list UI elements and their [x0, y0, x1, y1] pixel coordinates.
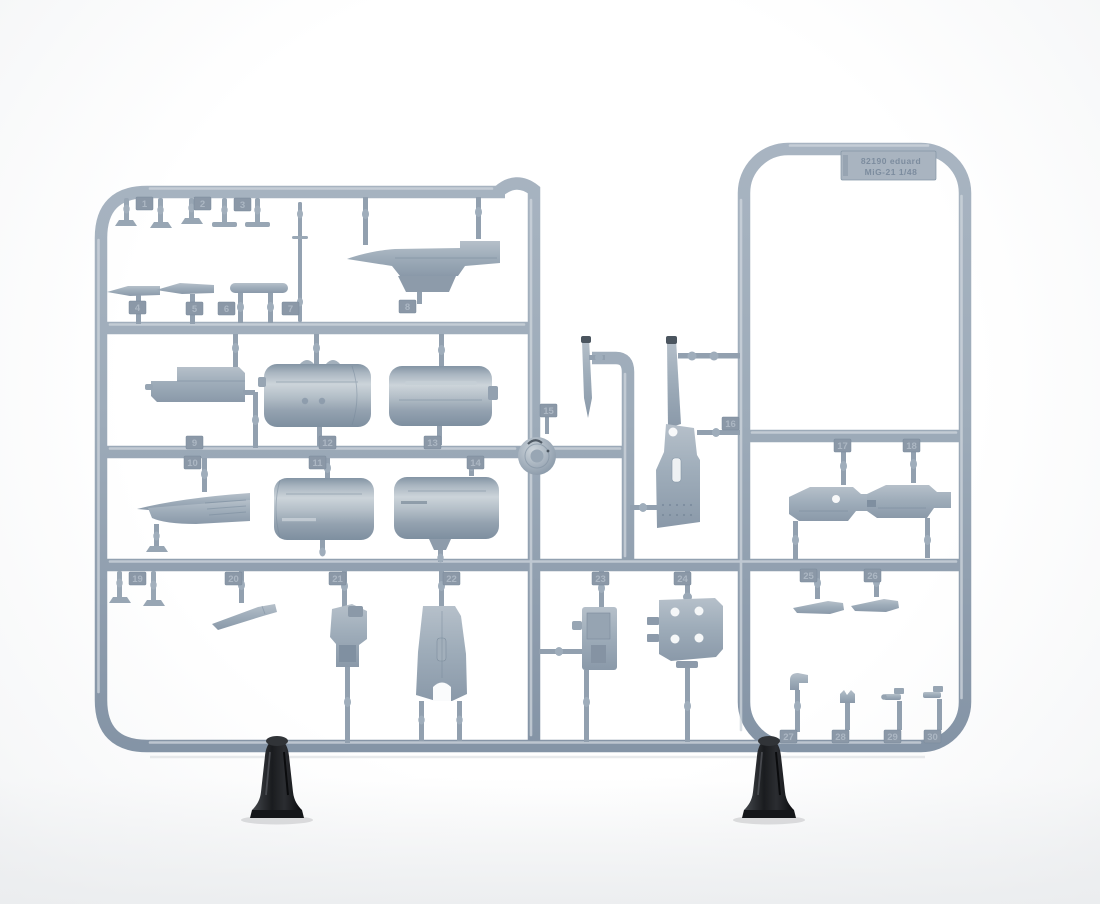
svg-text:20: 20 — [228, 574, 239, 585]
part-tag-19: 19 — [129, 572, 146, 585]
svg-text:13: 13 — [427, 438, 438, 449]
svg-text:23: 23 — [595, 574, 606, 585]
part-tag-14: 14 — [467, 456, 484, 469]
part-tag-1: 1 — [136, 197, 153, 210]
part-5 — [156, 283, 214, 324]
part-tag-26: 26 — [864, 569, 881, 582]
svg-text:5: 5 — [192, 304, 198, 315]
svg-text:27: 27 — [783, 732, 794, 743]
svg-text:10: 10 — [187, 458, 198, 469]
part-15 — [545, 336, 605, 434]
part-tag-9: 9 — [186, 436, 203, 449]
part-tag-23: 23 — [592, 572, 609, 585]
part-tag-17: 17 — [834, 439, 851, 452]
svg-text:14: 14 — [470, 458, 481, 469]
svg-text:11: 11 — [312, 458, 323, 469]
svg-text:3: 3 — [240, 200, 245, 211]
svg-text:29: 29 — [887, 732, 898, 743]
svg-text:8: 8 — [405, 302, 410, 313]
part-tag-29: 29 — [884, 730, 901, 743]
svg-text:21: 21 — [332, 574, 343, 585]
part-17 — [789, 442, 878, 559]
part-tag-11: 11 — [309, 456, 326, 469]
label-kit-name: MiG-21 1/48 — [865, 167, 918, 177]
part-tag-21: 21 — [329, 572, 346, 585]
part-8 — [347, 197, 500, 304]
svg-text:28: 28 — [835, 732, 846, 743]
frame-right-outline — [744, 149, 965, 746]
svg-text:18: 18 — [906, 441, 917, 452]
part-tag-16: 16 — [722, 417, 739, 430]
part-tag-5: 5 — [186, 302, 203, 315]
part-tag-15: 15 — [540, 404, 557, 417]
svg-text:24: 24 — [677, 574, 688, 585]
label-kit-number: 82190 eduard — [861, 156, 921, 166]
part-tag-25: 25 — [800, 569, 817, 582]
svg-text:12: 12 — [322, 438, 333, 449]
part-12 — [258, 334, 371, 446]
part-28 — [840, 690, 855, 730]
part-9 — [145, 334, 259, 448]
part-tag-7: 7 — [282, 302, 299, 315]
part-tag-22: 22 — [443, 572, 460, 585]
part-27 — [790, 673, 808, 732]
svg-text:6: 6 — [224, 304, 229, 315]
part-tag-18: 18 — [903, 439, 920, 452]
part-tag-13: 13 — [424, 436, 441, 449]
part-18 — [867, 442, 951, 558]
part-tag-6: 6 — [218, 302, 235, 315]
part-13 — [389, 334, 498, 445]
part-tag-3: 3 — [234, 198, 251, 211]
svg-text:19: 19 — [132, 574, 143, 585]
part-21 — [330, 571, 367, 743]
part-tag-28: 28 — [832, 730, 849, 743]
sprue-label: 82190 eduard MiG-21 1/48 — [841, 151, 936, 180]
part-30 — [923, 686, 943, 730]
part-tag-20: 20 — [225, 572, 242, 585]
part-tag-27: 27 — [780, 730, 797, 743]
part-14 — [394, 458, 499, 563]
part-29 — [881, 688, 904, 730]
part-tag-30: 30 — [924, 730, 941, 743]
svg-text:2: 2 — [200, 199, 205, 210]
svg-text:26: 26 — [867, 571, 878, 582]
svg-text:7: 7 — [288, 304, 293, 315]
part-24 — [647, 571, 723, 742]
runner-junction-disc — [518, 437, 556, 475]
part-11 — [274, 458, 374, 557]
svg-text:4: 4 — [135, 303, 141, 314]
part-23 — [539, 571, 617, 742]
part-tag-12: 12 — [319, 436, 336, 449]
part-tag-8: 8 — [399, 300, 416, 313]
sprue-photo: 1 2 3 4 5 6 7 8 9 10 11 12 13 14 15 16 1… — [0, 0, 1100, 904]
svg-text:30: 30 — [927, 732, 938, 743]
part-22 — [416, 571, 467, 741]
svg-text:25: 25 — [803, 571, 814, 582]
part-tag-10: 10 — [184, 456, 201, 469]
part-tag-24: 24 — [674, 572, 691, 585]
rail-vertical-mid — [592, 358, 628, 565]
part-20 — [212, 571, 277, 630]
svg-text:1: 1 — [142, 199, 148, 210]
svg-text:16: 16 — [725, 419, 736, 430]
part-10 — [137, 458, 250, 552]
part-tag-4: 4 — [129, 301, 146, 314]
sprue-photo-svg: 1 2 3 4 5 6 7 8 9 10 11 12 13 14 15 16 1… — [0, 0, 1100, 904]
svg-text:17: 17 — [837, 441, 848, 452]
part-tag-2: 2 — [194, 197, 211, 210]
part-16 — [630, 336, 740, 528]
svg-text:9: 9 — [192, 438, 197, 449]
part-6 — [230, 283, 288, 323]
svg-text:15: 15 — [543, 406, 554, 417]
svg-text:22: 22 — [446, 574, 457, 585]
